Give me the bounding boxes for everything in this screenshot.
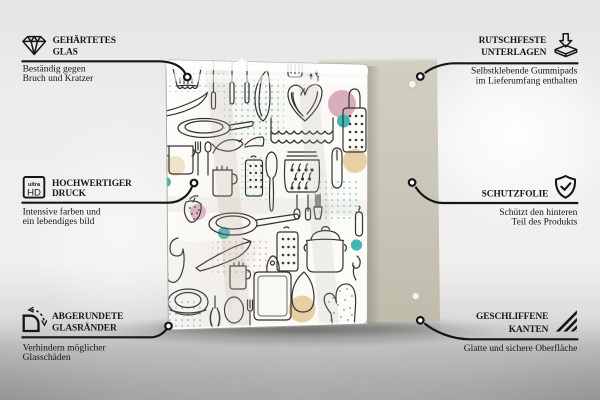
svg-text:Glatte und sichere Oberfläche: Glatte und sichere Oberfläche [464, 343, 578, 354]
svg-text:HD: HD [27, 187, 41, 198]
svg-text:Verhindern möglicher: Verhindern möglicher [23, 344, 107, 354]
svg-text:Teil des Produkts: Teil des Produkts [512, 217, 578, 227]
svg-text:ABGERUNDETE: ABGERUNDETE [52, 312, 123, 322]
svg-text:Selbstklebende Gummipads: Selbstklebende Gummipads [471, 67, 578, 77]
svg-text:UNTERLAGEN: UNTERLAGEN [481, 48, 546, 58]
svg-text:im Lieferumfang enthalten: im Lieferumfang enthalten [476, 75, 578, 86]
svg-text:HOCHWERTIGER: HOCHWERTIGER [52, 179, 132, 189]
svg-text:Bruch und Kratzer: Bruch und Kratzer [23, 74, 95, 84]
svg-text:GLAS: GLAS [53, 47, 78, 57]
svg-text:GESCHLIFFENE: GESCHLIFFENE [476, 312, 548, 322]
svg-text:RUTSCHFESTE: RUTSCHFESTE [479, 36, 547, 46]
svg-text:ein lebendiges bild: ein lebendiges bild [23, 217, 95, 227]
svg-text:KANTEN: KANTEN [509, 325, 549, 335]
svg-text:Intensive farben und: Intensive farben und [23, 206, 101, 217]
svg-text:DRUCK: DRUCK [52, 189, 87, 199]
svg-text:SCHUTZFOLIE: SCHUTZFOLIE [482, 190, 549, 200]
svg-text:Beständig gegen: Beständig gegen [23, 64, 86, 74]
svg-text:Glasschäden: Glasschäden [23, 353, 71, 363]
